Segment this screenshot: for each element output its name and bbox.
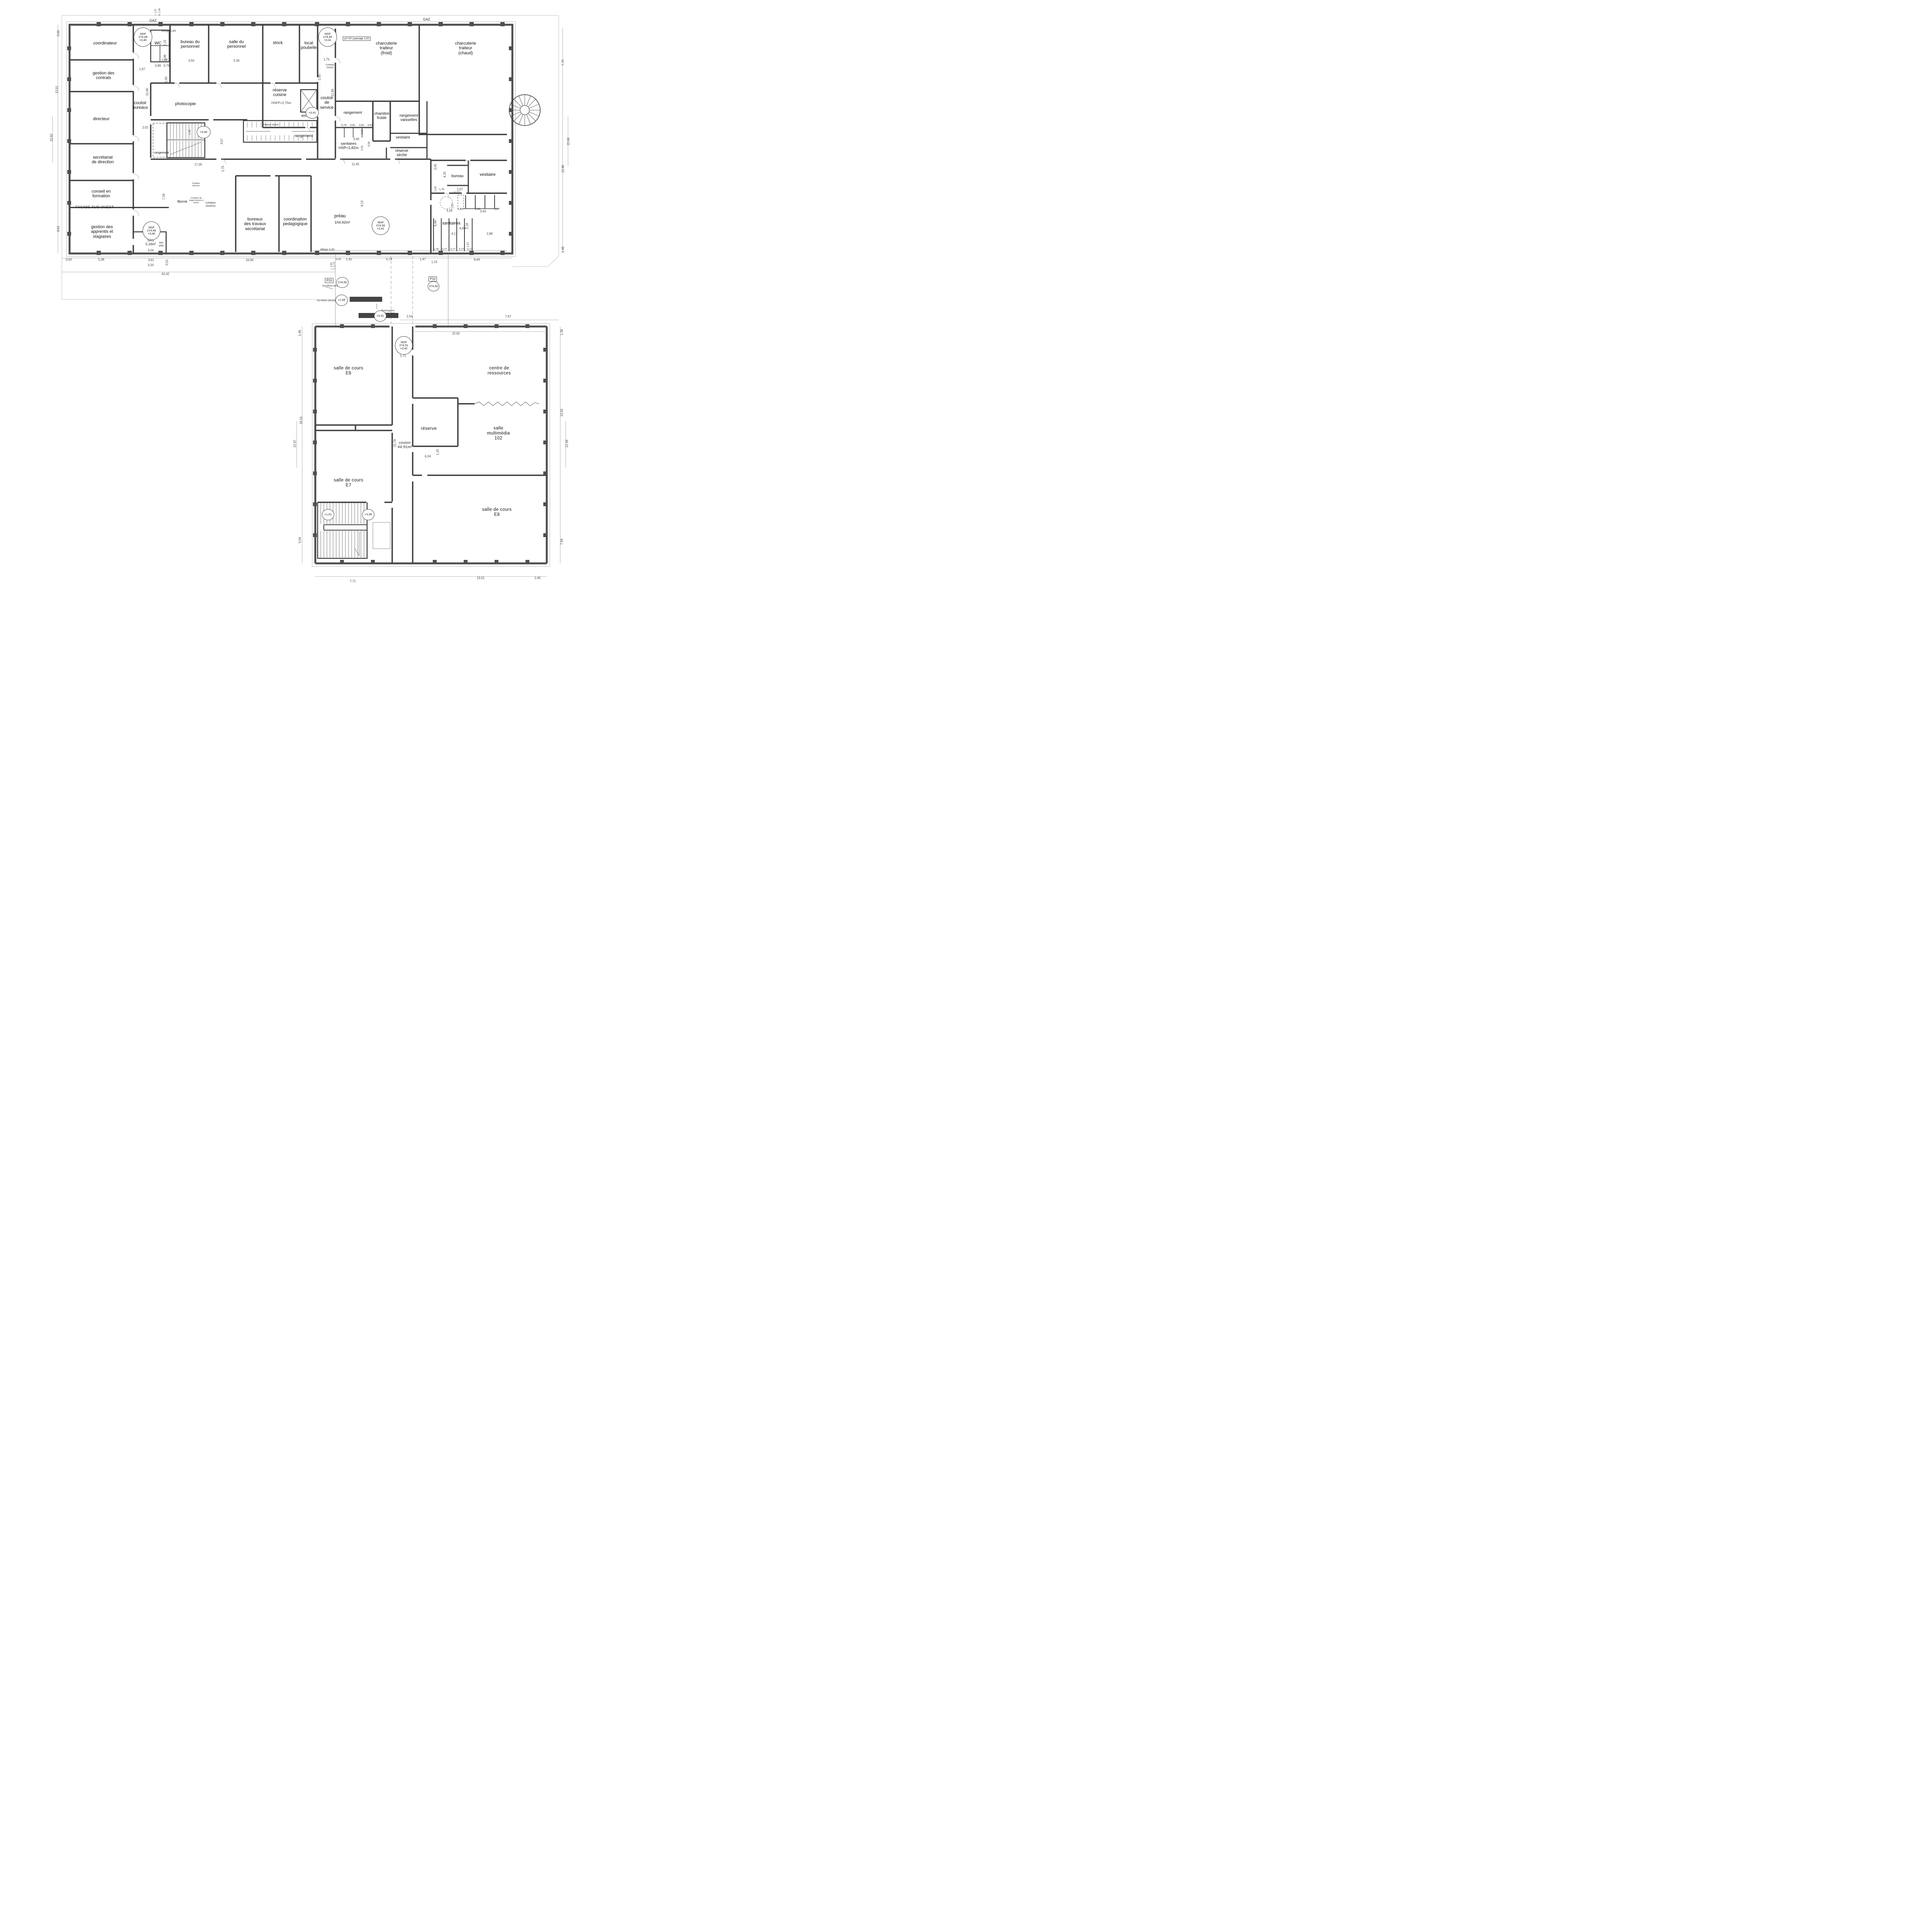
level-marker: NGF 274,50 +3,41 xyxy=(372,216,389,235)
level-marker: 274,50 xyxy=(428,281,439,291)
level-marker: NGF 274,51 +3,42 xyxy=(395,336,413,355)
tag-box: P10 xyxy=(429,277,437,282)
level-marker: +3,41 xyxy=(306,107,319,119)
level-marker: +1,68 xyxy=(335,295,348,306)
tag-box: P10 xyxy=(325,278,333,283)
level-marker: NGF 274,49 +3,40 xyxy=(143,221,160,240)
level-marker: +3,36 xyxy=(362,509,374,520)
level-marker: 274,50 xyxy=(336,277,349,288)
level-marker: NGF 274,45 +3,41 xyxy=(318,27,337,47)
level-marker: NGF 274,49 +3,40 xyxy=(134,27,152,47)
level-marker: +3,41 xyxy=(374,311,386,322)
floor-plan-sheet: coordinateurgestion des contratsdirecteu… xyxy=(0,0,594,585)
level-marker: +1,61 xyxy=(322,509,334,520)
level-marker: +3,40 xyxy=(197,126,211,138)
floor-plan-walls xyxy=(0,0,594,585)
tag-box: pi7-CF Lpassage 1,53 xyxy=(343,37,371,41)
